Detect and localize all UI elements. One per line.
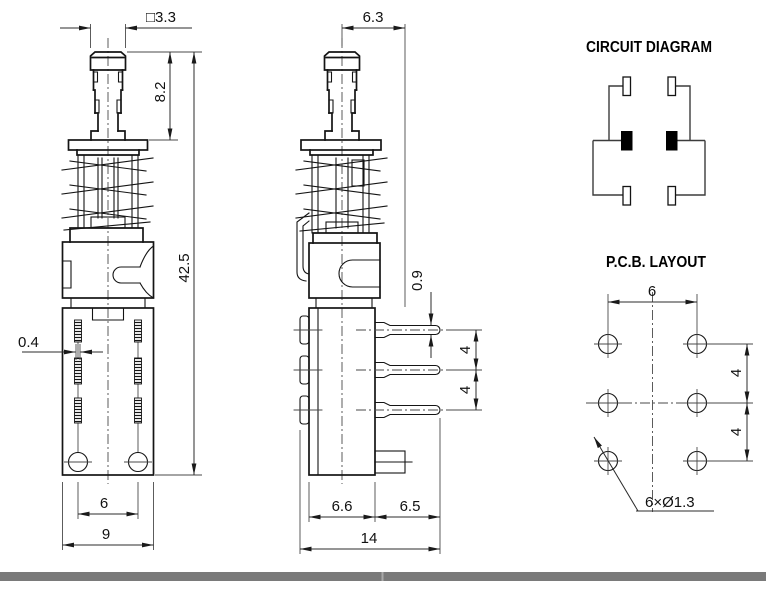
dim-top-width: 6.3	[363, 9, 384, 26]
dim-body-width: 9	[102, 526, 110, 543]
drawing-canvas: □3.3 8.2 42.5 0.4 6 9	[0, 0, 766, 589]
dim-body-depth: 6.6	[332, 498, 353, 515]
dim-plunger-height: 8.2	[152, 82, 169, 103]
contact-top-right	[668, 77, 676, 96]
dim-pin-pitch-upper: 4	[457, 346, 474, 354]
dim-pin-length: 6.5	[400, 498, 421, 515]
side-bottom-stub	[375, 451, 412, 473]
dim-pcb-hole-spacing-x: 6	[648, 283, 656, 300]
contact-bottom-right	[668, 187, 676, 206]
dim-pin-thickness: 0.9	[409, 270, 426, 291]
side-terminal-pins	[356, 323, 452, 418]
circuit-wiring	[593, 86, 705, 195]
side-body-lower	[294, 308, 452, 475]
front-plunger	[69, 52, 148, 155]
contact-common-right	[667, 132, 678, 151]
circuit-diagram-title: CIRCUIT DIAGRAM	[586, 39, 712, 56]
pcb-dimensions: 6 4 4 6×Ø1.3	[594, 283, 753, 511]
dim-pcb-hole-pitch-upper: 4	[728, 369, 745, 377]
front-spring	[62, 155, 153, 242]
side-view: 6.3 0.9 4 4 6.6 6.5 14	[294, 9, 482, 554]
dim-total-depth: 14	[361, 530, 378, 547]
dim-hole-spacing: 6	[100, 495, 108, 512]
side-body-upper	[309, 243, 380, 308]
circuit-diagram: CIRCUIT DIAGRAM	[586, 39, 712, 205]
contact-common-left	[622, 132, 633, 151]
contact-bottom-left	[623, 187, 631, 206]
side-plunger	[301, 52, 381, 155]
technical-drawing-page: □3.3 8.2 42.5 0.4 6 9	[0, 0, 766, 589]
contact-top-left	[623, 77, 631, 96]
circuit-contacts	[622, 77, 678, 205]
dim-terminal-thickness: 0.4	[18, 334, 39, 351]
divider-bar	[0, 572, 766, 581]
dim-total-height: 42.5	[176, 253, 193, 282]
dim-pcb-hole-callout: 6×Ø1.3	[645, 494, 695, 511]
side-latch-wire	[297, 213, 309, 281]
side-spring	[296, 155, 387, 243]
front-view: □3.3 8.2 42.5 0.4 6 9	[18, 9, 202, 550]
pcb-layout-title: P.C.B. LAYOUT	[606, 254, 706, 271]
dim-square-3-3: □3.3	[146, 9, 176, 26]
dim-pin-pitch-lower: 4	[457, 386, 474, 394]
pcb-layout: P.C.B. LAYOUT 6	[586, 254, 753, 512]
front-dimensions: □3.3 8.2 42.5 0.4 6 9	[18, 9, 202, 550]
dim-pcb-hole-pitch-lower: 4	[728, 428, 745, 436]
